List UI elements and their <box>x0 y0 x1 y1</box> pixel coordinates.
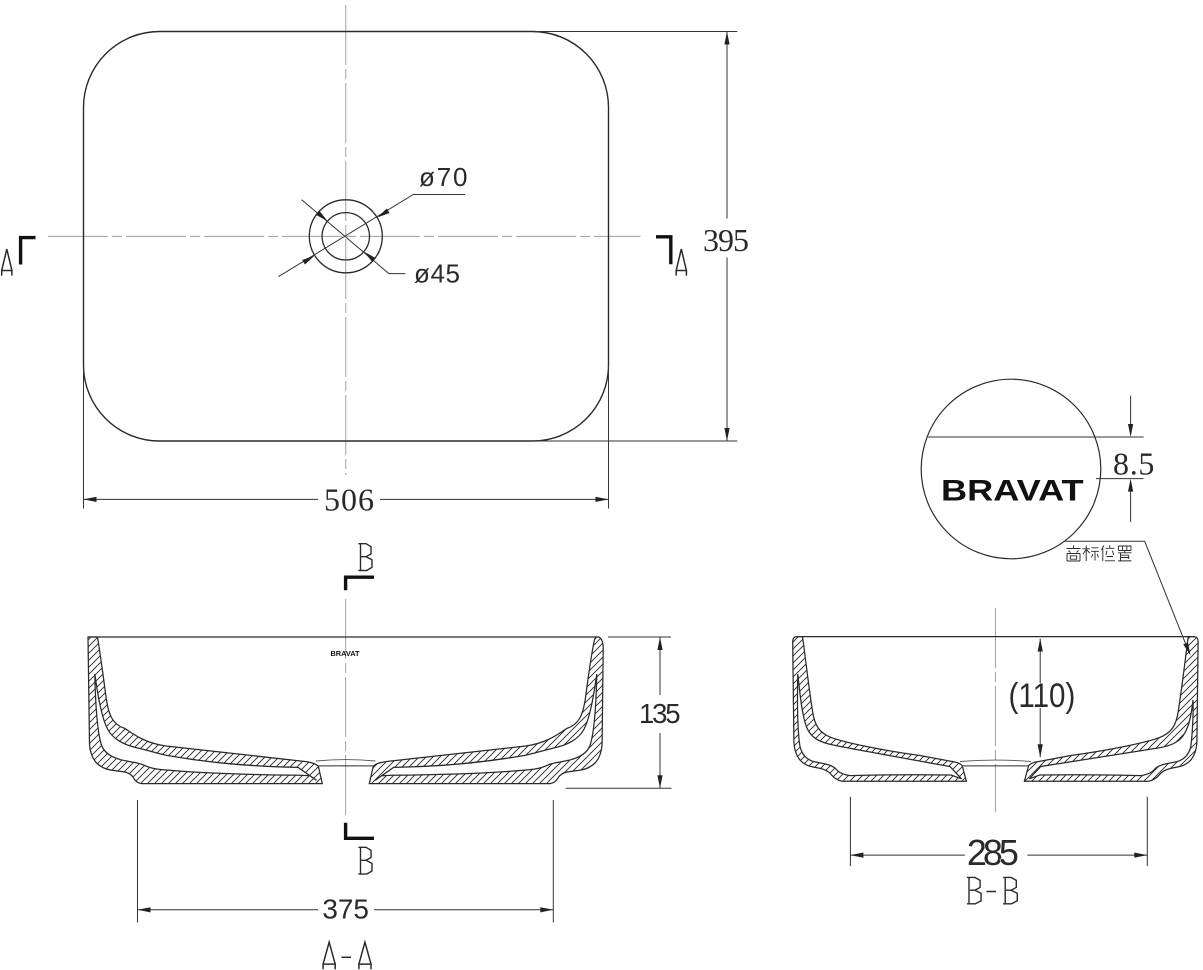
svg-text:8.5: 8.5 <box>1113 446 1154 482</box>
svg-text:506: 506 <box>324 482 374 518</box>
svg-text:135: 135 <box>639 698 681 729</box>
svg-text:BRAVAT: BRAVAT <box>941 475 1084 508</box>
svg-text:395: 395 <box>703 222 749 258</box>
svg-text:375: 375 <box>322 893 369 924</box>
svg-text:ø45: ø45 <box>414 258 460 288</box>
svg-text:(110): (110) <box>1009 677 1076 715</box>
svg-text:BRAVAT: BRAVAT <box>331 651 361 658</box>
svg-text:ø70: ø70 <box>419 162 468 192</box>
svg-text:285: 285 <box>967 832 1019 873</box>
